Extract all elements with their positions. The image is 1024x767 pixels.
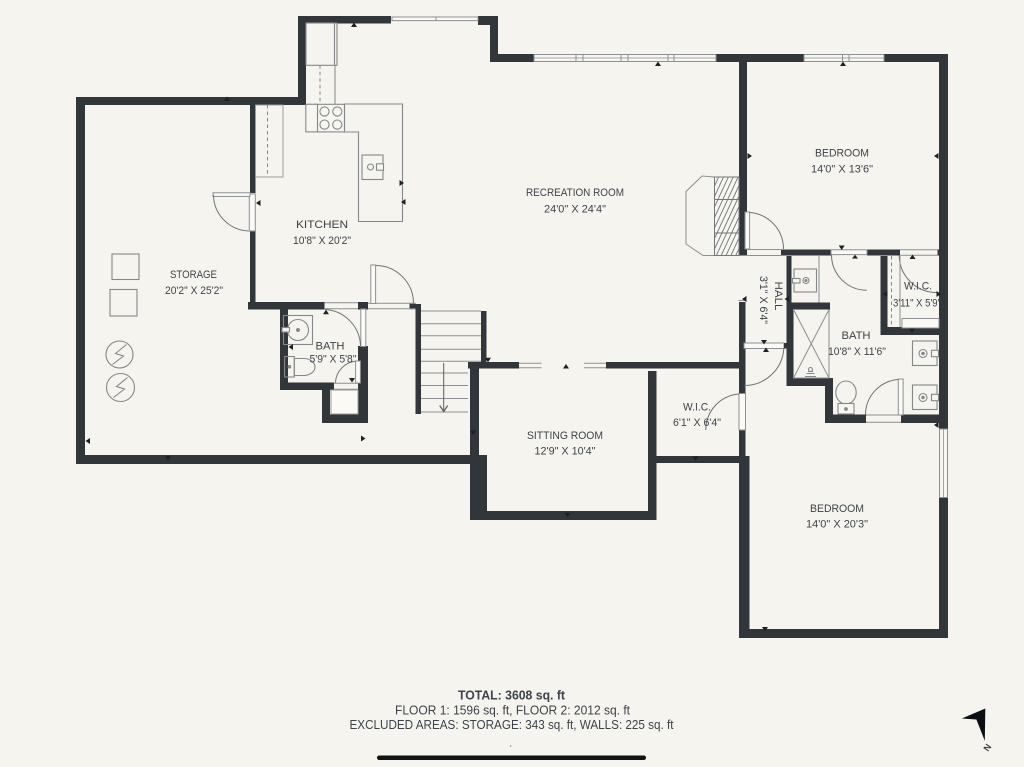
svg-text:BEDROOM: BEDROOM — [810, 503, 864, 515]
svg-text:BATH: BATH — [842, 330, 871, 342]
svg-text:6'1" X 6'4": 6'1" X 6'4" — [673, 417, 721, 429]
svg-text:W.I.C.: W.I.C. — [683, 402, 711, 414]
svg-text:3'11" X 5'9": 3'11" X 5'9" — [893, 298, 941, 310]
svg-text:BEDROOM: BEDROOM — [815, 148, 869, 160]
svg-text:10'8" X 11'6": 10'8" X 11'6" — [828, 346, 886, 358]
svg-text:TOTAL: 3608 sq. ft: TOTAL: 3608 sq. ft — [458, 688, 566, 703]
svg-text:FLOOR 1: 1596 sq. ft, FLOOR 2:: FLOOR 1: 1596 sq. ft, FLOOR 2: 2012 sq. … — [395, 703, 630, 718]
svg-text:BATH: BATH — [316, 341, 345, 353]
svg-text:10'8" X 20'2": 10'8" X 20'2" — [293, 235, 351, 247]
svg-text:EXCLUDED AREAS: STORAGE: 343 s: EXCLUDED AREAS: STORAGE: 343 sq. ft, WAL… — [350, 717, 674, 732]
svg-text:RECREATION ROOM: RECREATION ROOM — [526, 187, 624, 199]
svg-text:W.I.C.: W.I.C. — [904, 281, 932, 293]
svg-text:SITTING ROOM: SITTING ROOM — [527, 430, 603, 442]
svg-text:3'1" X 6'4": 3'1" X 6'4" — [757, 276, 769, 324]
svg-text:HALL: HALL — [772, 282, 784, 311]
svg-text:KITCHEN: KITCHEN — [296, 219, 348, 231]
svg-text:5'9" X 5'8": 5'9" X 5'8" — [310, 354, 357, 366]
svg-text:STORAGE: STORAGE — [170, 269, 217, 281]
svg-text:14'0" X 20'3": 14'0" X 20'3" — [806, 519, 868, 531]
svg-text:24'0" X 24'4": 24'0" X 24'4" — [544, 204, 606, 216]
svg-text:20'2" X 25'2": 20'2" X 25'2" — [165, 285, 223, 297]
svg-text:12'9" X 10'4": 12'9" X 10'4" — [535, 446, 596, 458]
svg-text:14'0" X 13'6": 14'0" X 13'6" — [811, 164, 873, 176]
